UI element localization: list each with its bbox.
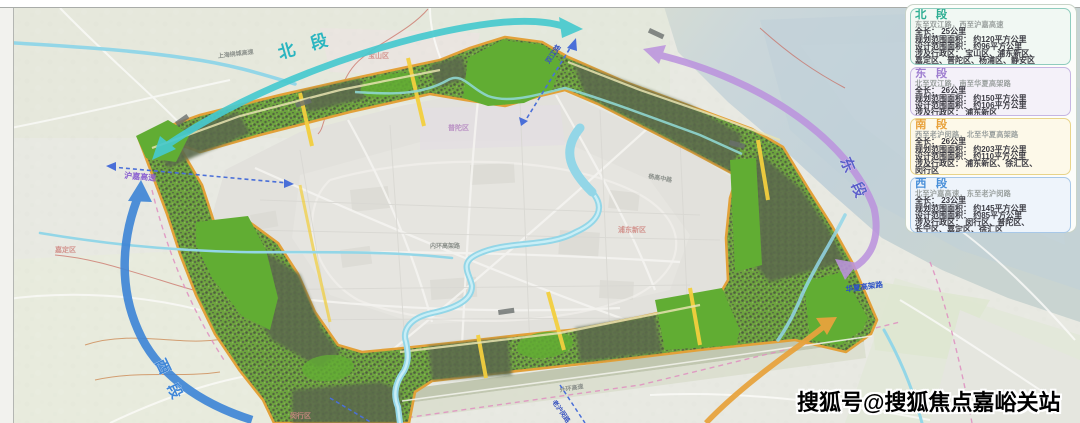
svg-text:内环高架路: 内环高架路 xyxy=(430,242,461,250)
svg-text:浦东新区: 浦东新区 xyxy=(618,225,646,234)
svg-text:普陀区: 普陀区 xyxy=(448,123,469,132)
svg-text:嘉定区: 嘉定区 xyxy=(54,245,76,254)
svg-text:闵行区: 闵行区 xyxy=(290,411,311,420)
